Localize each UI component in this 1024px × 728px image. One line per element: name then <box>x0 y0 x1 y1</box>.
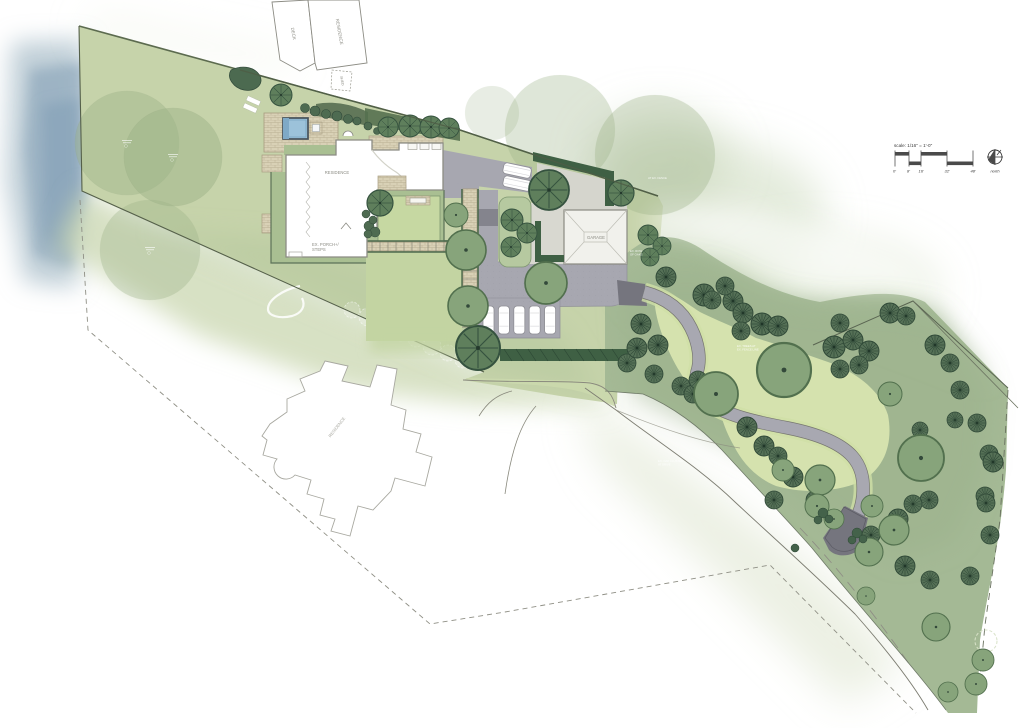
svg-text:north: north <box>990 169 1000 174</box>
svg-text:8': 8' <box>907 169 910 174</box>
svg-text:GARAGE: GARAGE <box>587 235 605 240</box>
svg-text:STEPS: STEPS <box>312 247 326 252</box>
svg-text:AT DRIVE: AT DRIVE <box>658 463 671 467</box>
svg-text:EX. FENCE LINE: EX. FENCE LINE <box>737 348 759 352</box>
svg-text:OF OAKS: OF OAKS <box>630 253 643 257</box>
svg-text:48': 48' <box>971 169 976 174</box>
svg-text:scale: 1/16" = 1'-0": scale: 1/16" = 1'-0" <box>894 143 933 148</box>
svg-text:16': 16' <box>919 169 924 174</box>
svg-text:0': 0' <box>893 169 896 174</box>
svg-text:AT EX. FENCE: AT EX. FENCE <box>648 176 667 180</box>
svg-text:RESIDENCE: RESIDENCE <box>325 170 350 175</box>
svg-text:32': 32' <box>945 169 950 174</box>
